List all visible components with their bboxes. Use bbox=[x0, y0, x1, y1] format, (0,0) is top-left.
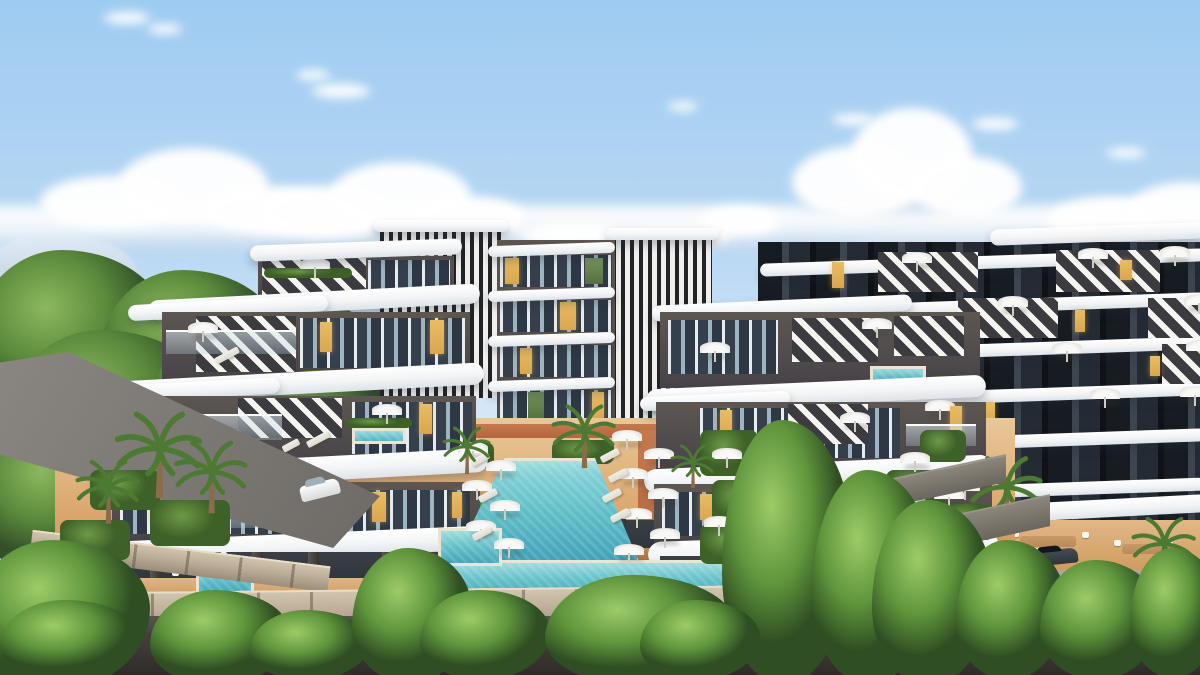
plunge-pool bbox=[438, 528, 502, 566]
terrace-spa-pool bbox=[352, 428, 406, 444]
sun-umbrella bbox=[614, 544, 644, 555]
sun-umbrella bbox=[1078, 248, 1108, 259]
chair bbox=[1114, 540, 1121, 546]
lit-window bbox=[430, 320, 444, 354]
cloud bbox=[912, 156, 1022, 218]
palm-tree bbox=[548, 392, 618, 477]
cloud bbox=[296, 70, 330, 80]
lit-window bbox=[505, 258, 519, 284]
sun-umbrella bbox=[1186, 340, 1200, 351]
tree bbox=[420, 590, 550, 675]
lit-window bbox=[420, 404, 432, 434]
lit-window bbox=[520, 348, 532, 374]
cloud bbox=[104, 12, 150, 24]
cloud bbox=[668, 102, 698, 111]
roof-slab bbox=[606, 228, 718, 240]
sun-umbrella bbox=[188, 322, 218, 333]
sun-umbrella bbox=[1160, 246, 1190, 257]
striped-facade-panel bbox=[894, 316, 964, 356]
green-reflection-window bbox=[528, 392, 544, 418]
chair bbox=[1082, 532, 1089, 538]
lit-window bbox=[832, 262, 844, 288]
sun-umbrella bbox=[840, 412, 870, 423]
sun-umbrella bbox=[862, 318, 892, 329]
sun-umbrella bbox=[490, 500, 520, 511]
sun-umbrella bbox=[900, 452, 930, 463]
sun-umbrella bbox=[650, 528, 680, 539]
sun-umbrella bbox=[700, 342, 730, 353]
palm-tree bbox=[440, 418, 492, 480]
lit-window bbox=[560, 302, 576, 330]
tree bbox=[640, 600, 760, 675]
cloud bbox=[1106, 148, 1146, 158]
sun-umbrella bbox=[998, 296, 1028, 307]
planter-hedge bbox=[264, 268, 352, 278]
striped-facade-panel bbox=[1056, 250, 1160, 292]
sun-umbrella bbox=[712, 448, 742, 459]
lit-window bbox=[452, 492, 462, 518]
lit-window bbox=[1075, 310, 1085, 332]
sun-umbrella bbox=[372, 404, 402, 415]
roof-slab bbox=[374, 220, 508, 232]
sun-umbrella bbox=[1090, 388, 1120, 399]
palm-tree bbox=[72, 440, 142, 540]
green-reflection-window bbox=[585, 258, 603, 284]
window-row bbox=[500, 300, 612, 332]
palm-tree bbox=[668, 436, 716, 494]
sun-umbrella bbox=[1052, 342, 1082, 353]
window-row bbox=[500, 345, 612, 377]
cloud bbox=[312, 84, 370, 98]
cloud bbox=[972, 118, 1018, 130]
lit-window bbox=[1150, 356, 1160, 376]
planter-hedge bbox=[346, 418, 412, 428]
lit-window bbox=[1120, 260, 1132, 280]
tree bbox=[0, 600, 140, 675]
cloud bbox=[148, 24, 182, 34]
sun-umbrella bbox=[1184, 294, 1200, 305]
palm-tree bbox=[170, 420, 250, 530]
sun-umbrella bbox=[1180, 386, 1200, 397]
architectural-render-scene bbox=[0, 0, 1200, 675]
sun-umbrella bbox=[462, 480, 492, 491]
sun-umbrella bbox=[902, 252, 932, 263]
sun-umbrella bbox=[494, 538, 524, 549]
lit-window bbox=[320, 322, 332, 352]
